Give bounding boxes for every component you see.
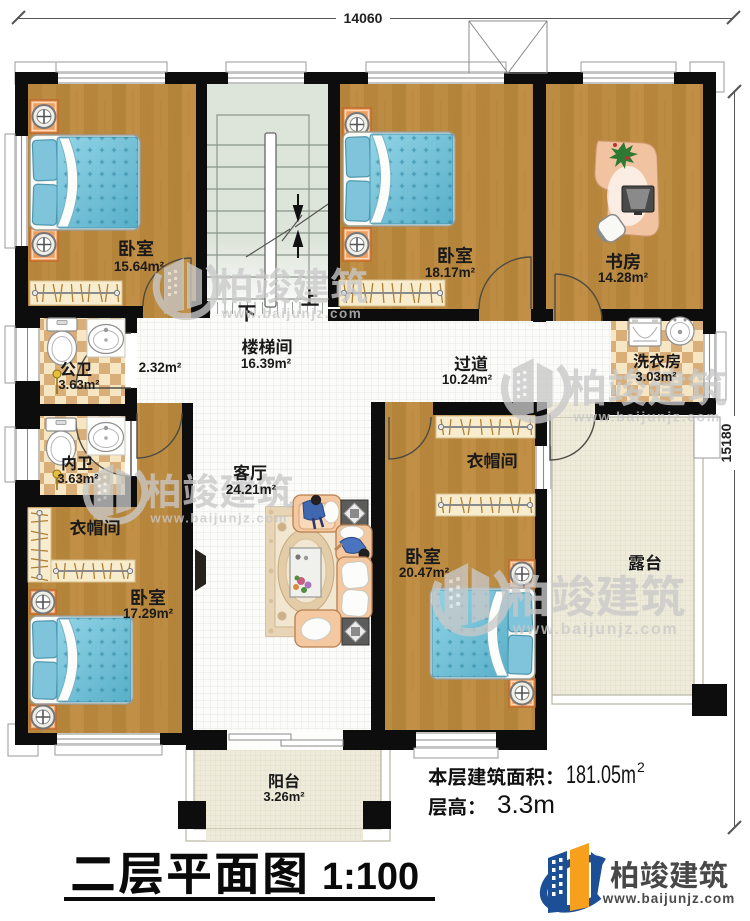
svg-text:www.baijunjz.com: www.baijunjz.com: [512, 621, 679, 638]
svg-text:18.17m²: 18.17m²: [425, 265, 476, 280]
svg-text:www.baijunjz.com: www.baijunjz.com: [572, 409, 720, 425]
svg-text:2: 2: [637, 759, 645, 775]
svg-text:www.baijunjz.com: www.baijunjz.com: [149, 511, 288, 526]
svg-text:20.47m²: 20.47m²: [399, 565, 450, 580]
svg-text:15.64m²: 15.64m²: [114, 259, 165, 274]
svg-text:16.39m²: 16.39m²: [241, 356, 292, 371]
svg-text:www.baijunjz.com: www.baijunjz.com: [221, 306, 363, 321]
svg-text:2.32m²: 2.32m²: [139, 360, 182, 375]
svg-text:1:100: 1:100: [322, 856, 419, 898]
svg-text:181.05m: 181.05m: [566, 761, 636, 789]
svg-text:17.29m²: 17.29m²: [123, 606, 174, 621]
svg-text:3.26m²: 3.26m²: [263, 789, 305, 804]
svg-text:3.03m²: 3.03m²: [635, 369, 677, 384]
svg-text:3.63m²: 3.63m²: [57, 471, 99, 486]
svg-text:14.28m²: 14.28m²: [598, 270, 649, 285]
svg-text:24.21m²: 24.21m²: [226, 482, 277, 497]
svg-text:3.63m²: 3.63m²: [58, 377, 100, 392]
svg-text:10.24m²: 10.24m²: [442, 372, 493, 387]
svg-text:14060: 14060: [344, 10, 383, 26]
svg-text:www.baijunjz.com: www.baijunjz.com: [602, 891, 736, 906]
svg-text:3.3m: 3.3m: [497, 791, 555, 819]
